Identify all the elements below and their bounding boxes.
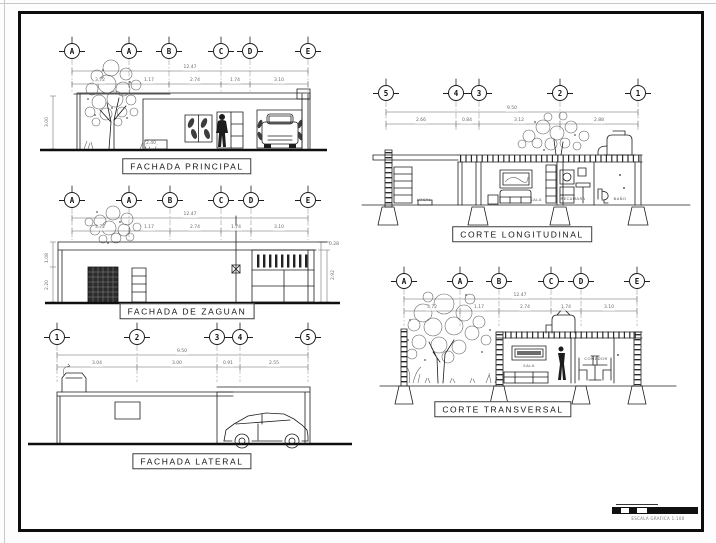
axis-5: 5 — [300, 329, 316, 345]
title-corte-longitudinal: CORTE LONGITUDINAL — [452, 226, 592, 242]
dim-1.17: 1.17 — [473, 306, 485, 311]
axis-a: A — [452, 273, 468, 289]
dim-2.74: 2.74 — [519, 306, 531, 311]
axis-e: E — [300, 192, 316, 208]
drawing-sheet: AABCDE 12.473.721.172.741.743.103.002.40… — [0, 0, 716, 543]
dim-2.40: 2.40 — [145, 142, 157, 147]
dim-2.66: 2.66 — [415, 119, 427, 124]
axis-a: A — [64, 192, 80, 208]
scale-bar-tick-line — [616, 504, 658, 505]
axis-a: A — [121, 43, 137, 59]
dim-3.00: 3.00 — [171, 362, 183, 367]
scale-bar-segment — [637, 508, 647, 513]
fachada-zaguan-drawing — [45, 186, 340, 303]
dim-1.08: 1.08 — [46, 252, 51, 264]
axis-e: E — [300, 43, 316, 59]
scale-bar-segment — [629, 508, 637, 513]
room-sala: SALA — [530, 198, 542, 202]
dim-2.20: 2.20 — [46, 279, 51, 291]
dim-1.74: 1.74 — [230, 226, 242, 231]
axis-2: 2 — [129, 329, 145, 345]
graphic-scale-bar: ESCALA GRAFICA 1:100 — [612, 504, 704, 521]
room-sala: SALA — [523, 364, 535, 368]
axis-3: 3 — [209, 329, 225, 345]
axis-4: 4 — [448, 85, 464, 101]
axis-5: 5 — [378, 85, 394, 101]
dim-0.84: 0.84 — [461, 119, 473, 124]
cad-linework — [0, 0, 716, 543]
dim-1.74: 1.74 — [229, 79, 241, 84]
axis-a: A — [64, 43, 80, 59]
dim-12.47: 12.47 — [183, 66, 198, 71]
room-comedor: COMEDOR — [584, 357, 607, 361]
axis-d: D — [242, 43, 258, 59]
dim-3.10: 3.10 — [273, 79, 285, 84]
dim-3.72: 3.72 — [426, 306, 438, 311]
axis-b: B — [161, 43, 177, 59]
scale-bar-label: ESCALA GRAFICA 1:100 — [612, 516, 704, 521]
dim-3.00: 3.00 — [46, 116, 51, 128]
corte-longitudinal-drawing — [362, 79, 690, 225]
scale-bar-segment — [621, 508, 629, 513]
dim-0.28: 0.28 — [328, 243, 340, 248]
title-corte-transversal: CORTE TRANSVERSAL — [434, 401, 571, 417]
axis-4: 4 — [232, 329, 248, 345]
axis-c: C — [213, 43, 229, 59]
scale-bar-segment — [647, 508, 697, 513]
dim-2.74: 2.74 — [189, 79, 201, 84]
dim-2.74: 2.74 — [189, 226, 201, 231]
axis-1: 1 — [49, 329, 65, 345]
dim-12.47: 12.47 — [183, 213, 198, 218]
axis-a: A — [396, 273, 412, 289]
axis-1: 1 — [630, 85, 646, 101]
axis-c: C — [543, 273, 559, 289]
axis-b: B — [491, 273, 507, 289]
dim-2.88: 2.88 — [593, 119, 605, 124]
title-fachada-principal: FACHADA PRINCIPAL — [122, 158, 251, 174]
dim-9.50: 9.50 — [176, 350, 188, 355]
dim-3.04: 3.04 — [91, 362, 103, 367]
title-fachada-zaguan: FACHADA DE ZAGUAN — [120, 303, 255, 319]
axis-a: A — [121, 192, 137, 208]
room-local: LOCAL — [417, 198, 432, 202]
dim-3.72: 3.72 — [94, 226, 106, 231]
axis-3: 3 — [471, 85, 487, 101]
dim-0.91: 0.91 — [222, 362, 234, 367]
axis-c: C — [213, 192, 229, 208]
dim-1.17: 1.17 — [143, 226, 155, 231]
fachada-principal-drawing — [40, 37, 327, 150]
dim-3.12: 3.12 — [513, 119, 525, 124]
dim-3.10: 3.10 — [273, 226, 285, 231]
dim-2.55: 2.55 — [268, 362, 280, 367]
dim-2.92: 2.92 — [332, 269, 337, 281]
room-recamara: RECAMARA — [561, 197, 586, 201]
axis-d: D — [573, 273, 589, 289]
axis-2: 2 — [552, 85, 568, 101]
dim-3.72: 3.72 — [94, 79, 106, 84]
axis-d: D — [243, 192, 259, 208]
dim-3.10: 3.10 — [603, 306, 615, 311]
axis-e: E — [629, 273, 645, 289]
dim-9.50: 9.50 — [506, 107, 518, 112]
dim-12.47: 12.47 — [513, 294, 528, 299]
scale-bar-segment — [613, 508, 621, 513]
title-fachada-lateral: FACHADA LATERAL — [132, 453, 251, 469]
room-baño: BAÑO — [614, 197, 627, 201]
axis-b: B — [162, 192, 178, 208]
dim-1.17: 1.17 — [143, 79, 155, 84]
dim-1.74: 1.74 — [560, 306, 572, 311]
scale-bar-blocks — [612, 507, 698, 514]
